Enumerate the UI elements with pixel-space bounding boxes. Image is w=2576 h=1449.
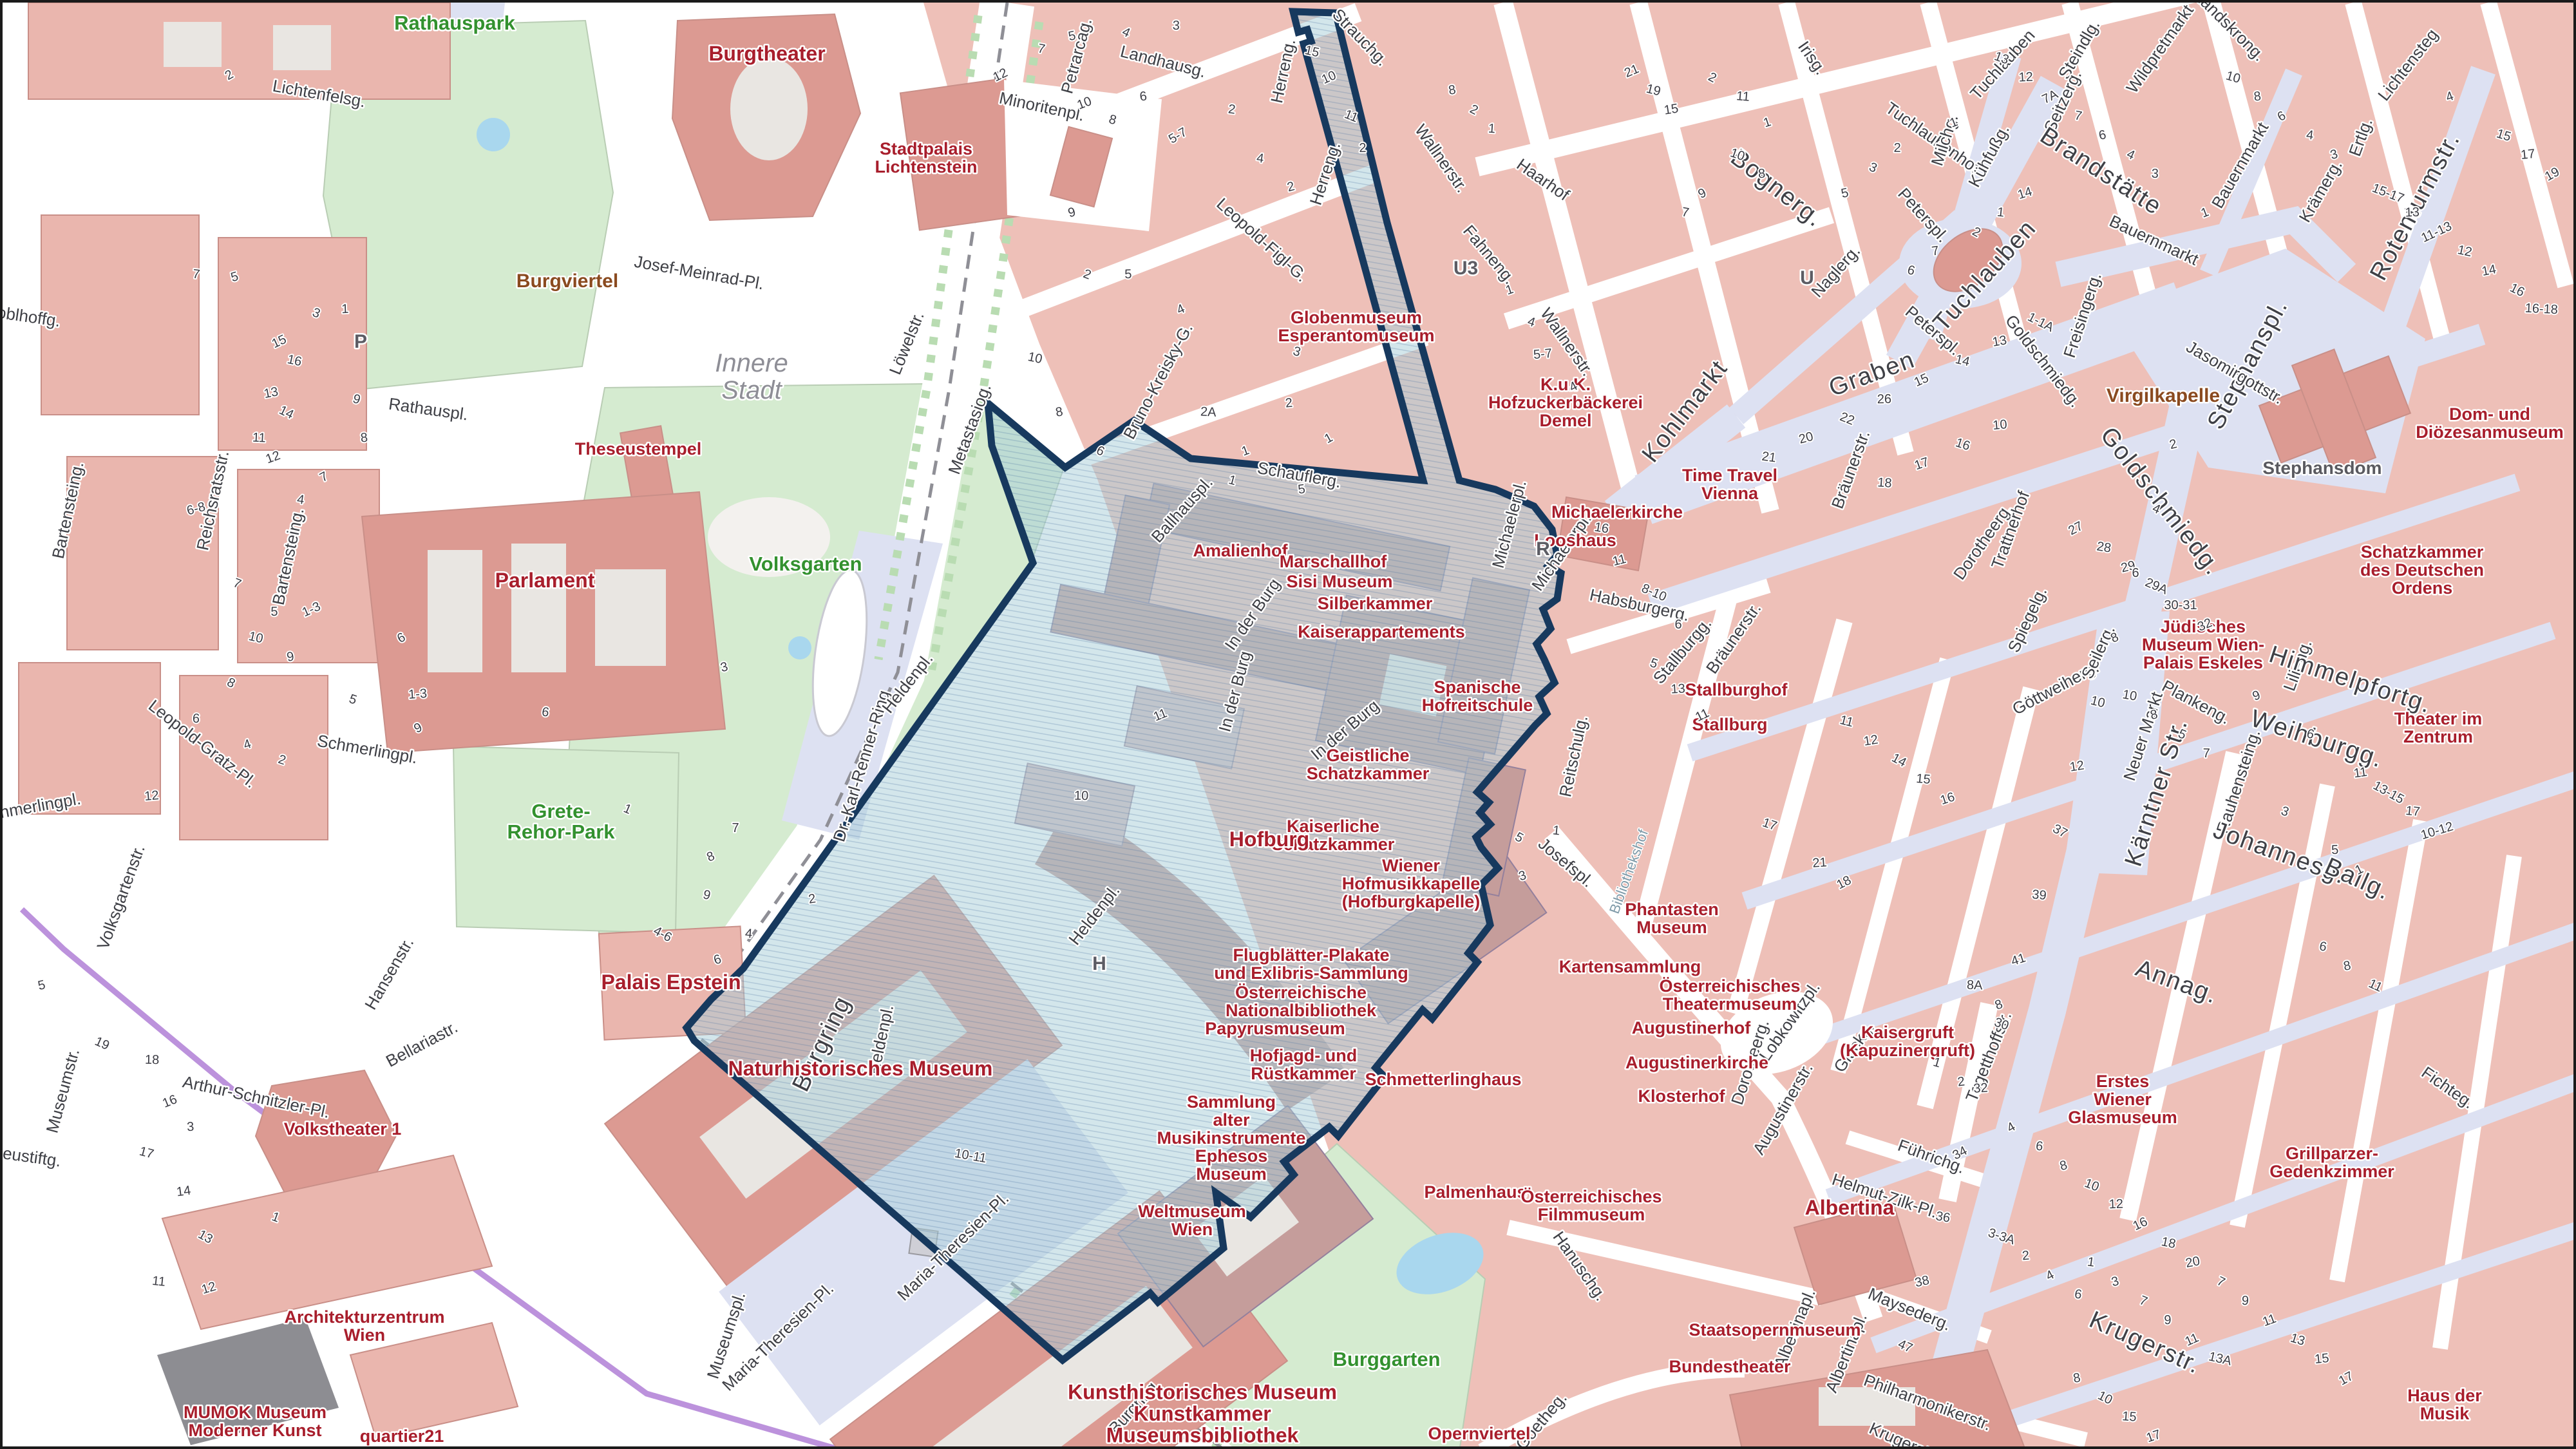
map-label: Staatsopernmuseum bbox=[1689, 1320, 1861, 1340]
house-number: 2 bbox=[1893, 141, 1901, 155]
map-label: SpanischeHofreitschule bbox=[1422, 677, 1533, 715]
map-label: Parlament bbox=[495, 569, 595, 592]
house-number: 1 bbox=[1488, 122, 1496, 137]
house-number: 8 bbox=[1757, 167, 1766, 182]
map-label: Silberkammer bbox=[1318, 594, 1433, 613]
map-label: PhantastenMuseum bbox=[1625, 900, 1719, 937]
house-number: 8 bbox=[360, 431, 368, 446]
map-label: Hofjagd- undRüstkammer bbox=[1250, 1046, 1357, 1083]
house-number: 26 bbox=[1877, 392, 1892, 406]
map-label: Stephansdom bbox=[2262, 458, 2382, 478]
map-label: H bbox=[1092, 953, 1106, 974]
map-label: Virgilkapelle bbox=[2107, 385, 2220, 406]
map-label: Albertina bbox=[1805, 1196, 1895, 1219]
house-number: 12 bbox=[2456, 243, 2473, 260]
map-label: Kartensammlung bbox=[1559, 957, 1701, 976]
map-label: Palais Epstein bbox=[601, 971, 741, 994]
house-number: 1 bbox=[1552, 824, 1560, 838]
map-label: Bundestheater bbox=[1669, 1357, 1791, 1376]
house-number: 7 bbox=[2202, 746, 2210, 761]
house-number: 12 bbox=[144, 788, 159, 804]
map-label: InnereStadt bbox=[715, 349, 788, 404]
house-number: 2 bbox=[2022, 1249, 2030, 1264]
house-number: 1 bbox=[1996, 205, 2005, 220]
map-label: Stallburghof bbox=[1685, 680, 1788, 699]
map-canvas[interactable]: RathausparkVolksgartenGrete-Rehor-ParkBu… bbox=[3, 3, 2576, 1449]
map-label: P bbox=[354, 331, 367, 352]
house-number: 6 bbox=[192, 712, 200, 726]
house-number: 11 bbox=[1736, 89, 1750, 104]
map-label: Klosterhof bbox=[1638, 1086, 1726, 1106]
map-label: Flugblätter-Plakateund Exlibris-Sammlung bbox=[1214, 945, 1408, 983]
map-label: Hofburg bbox=[1229, 828, 1309, 851]
house-number: 14 bbox=[2481, 262, 2497, 279]
house-number: 17 bbox=[2405, 804, 2420, 819]
house-number: 1-3 bbox=[408, 687, 427, 702]
map-label: U3 bbox=[1454, 258, 1478, 279]
house-number: 18 bbox=[2160, 1235, 2177, 1251]
house-number: 10 bbox=[1027, 350, 1043, 366]
map-label: Volkstheater 1 bbox=[284, 1119, 402, 1139]
house-number: 7 bbox=[732, 821, 739, 835]
map-label: R bbox=[1536, 538, 1550, 560]
house-number: 20 bbox=[2184, 1254, 2201, 1271]
house-number: 17 bbox=[2520, 147, 2535, 162]
map-label: Augustinerhof bbox=[1632, 1018, 1751, 1037]
house-number: 12 bbox=[1862, 732, 1879, 748]
map-label: Burgtheater bbox=[708, 42, 825, 65]
house-number: 12 bbox=[2018, 70, 2033, 84]
map-label: MUMOK MuseumModerner Kunst bbox=[184, 1403, 327, 1440]
map-label: U bbox=[1800, 267, 1814, 289]
house-number: 14 bbox=[176, 1184, 192, 1200]
house-number: 13 bbox=[1671, 681, 1685, 696]
map-label: Burgviertel bbox=[516, 270, 618, 292]
map-viewport[interactable]: RathausparkVolksgartenGrete-Rehor-ParkBu… bbox=[0, 0, 2576, 1449]
house-number: 18 bbox=[145, 1053, 160, 1067]
map-label: ÖsterreichischeNationalbibliothek bbox=[1226, 983, 1377, 1020]
house-number: 5-7 bbox=[1533, 346, 1553, 362]
map-label: StadtpalaisLichtenstein bbox=[875, 139, 977, 176]
house-number: 3 bbox=[1172, 19, 1180, 33]
house-number: 9 bbox=[2241, 1294, 2249, 1309]
map-label: Grillparzer-Gedenkzimmer bbox=[2269, 1144, 2394, 1181]
house-number: 3 bbox=[187, 1120, 194, 1135]
house-number: 13 bbox=[263, 384, 279, 401]
map-label: quartier21 bbox=[360, 1426, 444, 1446]
map-label: Sisi Museum bbox=[1286, 572, 1392, 591]
house-number: 16 bbox=[1593, 520, 1609, 536]
map-label: Michaelerkirche bbox=[1551, 502, 1683, 522]
map-label: Palmenhaus bbox=[1424, 1182, 1526, 1202]
house-number: 15 bbox=[2314, 1351, 2329, 1367]
house-number: 13 bbox=[2405, 205, 2420, 220]
house-number: 15 bbox=[1663, 101, 1679, 117]
house-number: 18 bbox=[1877, 475, 1893, 490]
map-label: Opernviertel bbox=[1428, 1424, 1530, 1443]
house-number: 16-18 bbox=[2524, 301, 2558, 317]
house-number: 5 bbox=[2331, 843, 2339, 858]
house-number: 15 bbox=[1915, 772, 1931, 787]
house-number: 8A bbox=[1967, 978, 1984, 993]
house-number: 21 bbox=[1812, 855, 1828, 870]
house-number: 5 bbox=[270, 605, 278, 619]
house-number: 21 bbox=[1761, 450, 1777, 466]
map-label: Theater imZentrum bbox=[2394, 709, 2483, 746]
map-label: Rathauspark bbox=[394, 12, 516, 34]
map-label: ÖsterreichischesFilmmuseum bbox=[1520, 1187, 1662, 1224]
house-number: 6 bbox=[1674, 618, 1681, 632]
house-number: 28 bbox=[2096, 539, 2112, 555]
house-number: 2A bbox=[1200, 404, 1217, 419]
house-number: 12 bbox=[2069, 758, 2085, 774]
house-number: 6 bbox=[2132, 566, 2139, 580]
map-label: Marschallhof bbox=[1280, 552, 1388, 571]
house-number: 36 bbox=[1935, 1209, 1951, 1226]
house-number: 3 bbox=[2151, 167, 2159, 181]
house-number: 4 bbox=[744, 927, 753, 942]
house-number: 1 bbox=[341, 302, 349, 316]
map-label: Naturhistorisches Museum bbox=[728, 1057, 993, 1080]
house-number: 10 bbox=[1992, 417, 2007, 433]
house-number: 11 bbox=[252, 430, 266, 445]
house-number: 13 bbox=[1991, 333, 2008, 350]
house-number: 5 bbox=[1124, 267, 1132, 281]
house-number: 16 bbox=[286, 352, 303, 369]
house-number: 30-31 bbox=[2164, 598, 2197, 612]
house-number: 11 bbox=[2353, 765, 2368, 781]
house-number: 10 bbox=[1074, 789, 1089, 803]
map-label: Volksgarten bbox=[749, 553, 862, 575]
map-label: Burggarten bbox=[1332, 1348, 1440, 1370]
map-label: Papyrusmuseum bbox=[1205, 1019, 1345, 1038]
map-label: Augustinerkirche bbox=[1625, 1053, 1768, 1072]
house-number: 11 bbox=[151, 1274, 166, 1289]
map-label: Schmetterlinghaus bbox=[1365, 1070, 1521, 1089]
house-number: 9 bbox=[2164, 1313, 2172, 1327]
house-number: 12 bbox=[2108, 1197, 2123, 1212]
map-label: Amalienhof bbox=[1193, 541, 1288, 560]
house-number: 10 bbox=[2121, 687, 2138, 704]
map-label: ÖsterreichischesTheatermuseum bbox=[1659, 976, 1800, 1014]
house-number: 32 bbox=[1973, 1081, 1989, 1095]
house-number: 39 bbox=[2031, 887, 2047, 903]
house-number: 2 bbox=[1285, 396, 1293, 411]
house-number: 2 bbox=[1359, 141, 1367, 155]
map-label: Theseustempel bbox=[575, 439, 702, 459]
map-label: Kaiserappartements bbox=[1298, 622, 1465, 641]
map-label: GlobenmuseumEsperantomuseum bbox=[1278, 308, 1434, 345]
house-number: 15 bbox=[2122, 1409, 2137, 1424]
